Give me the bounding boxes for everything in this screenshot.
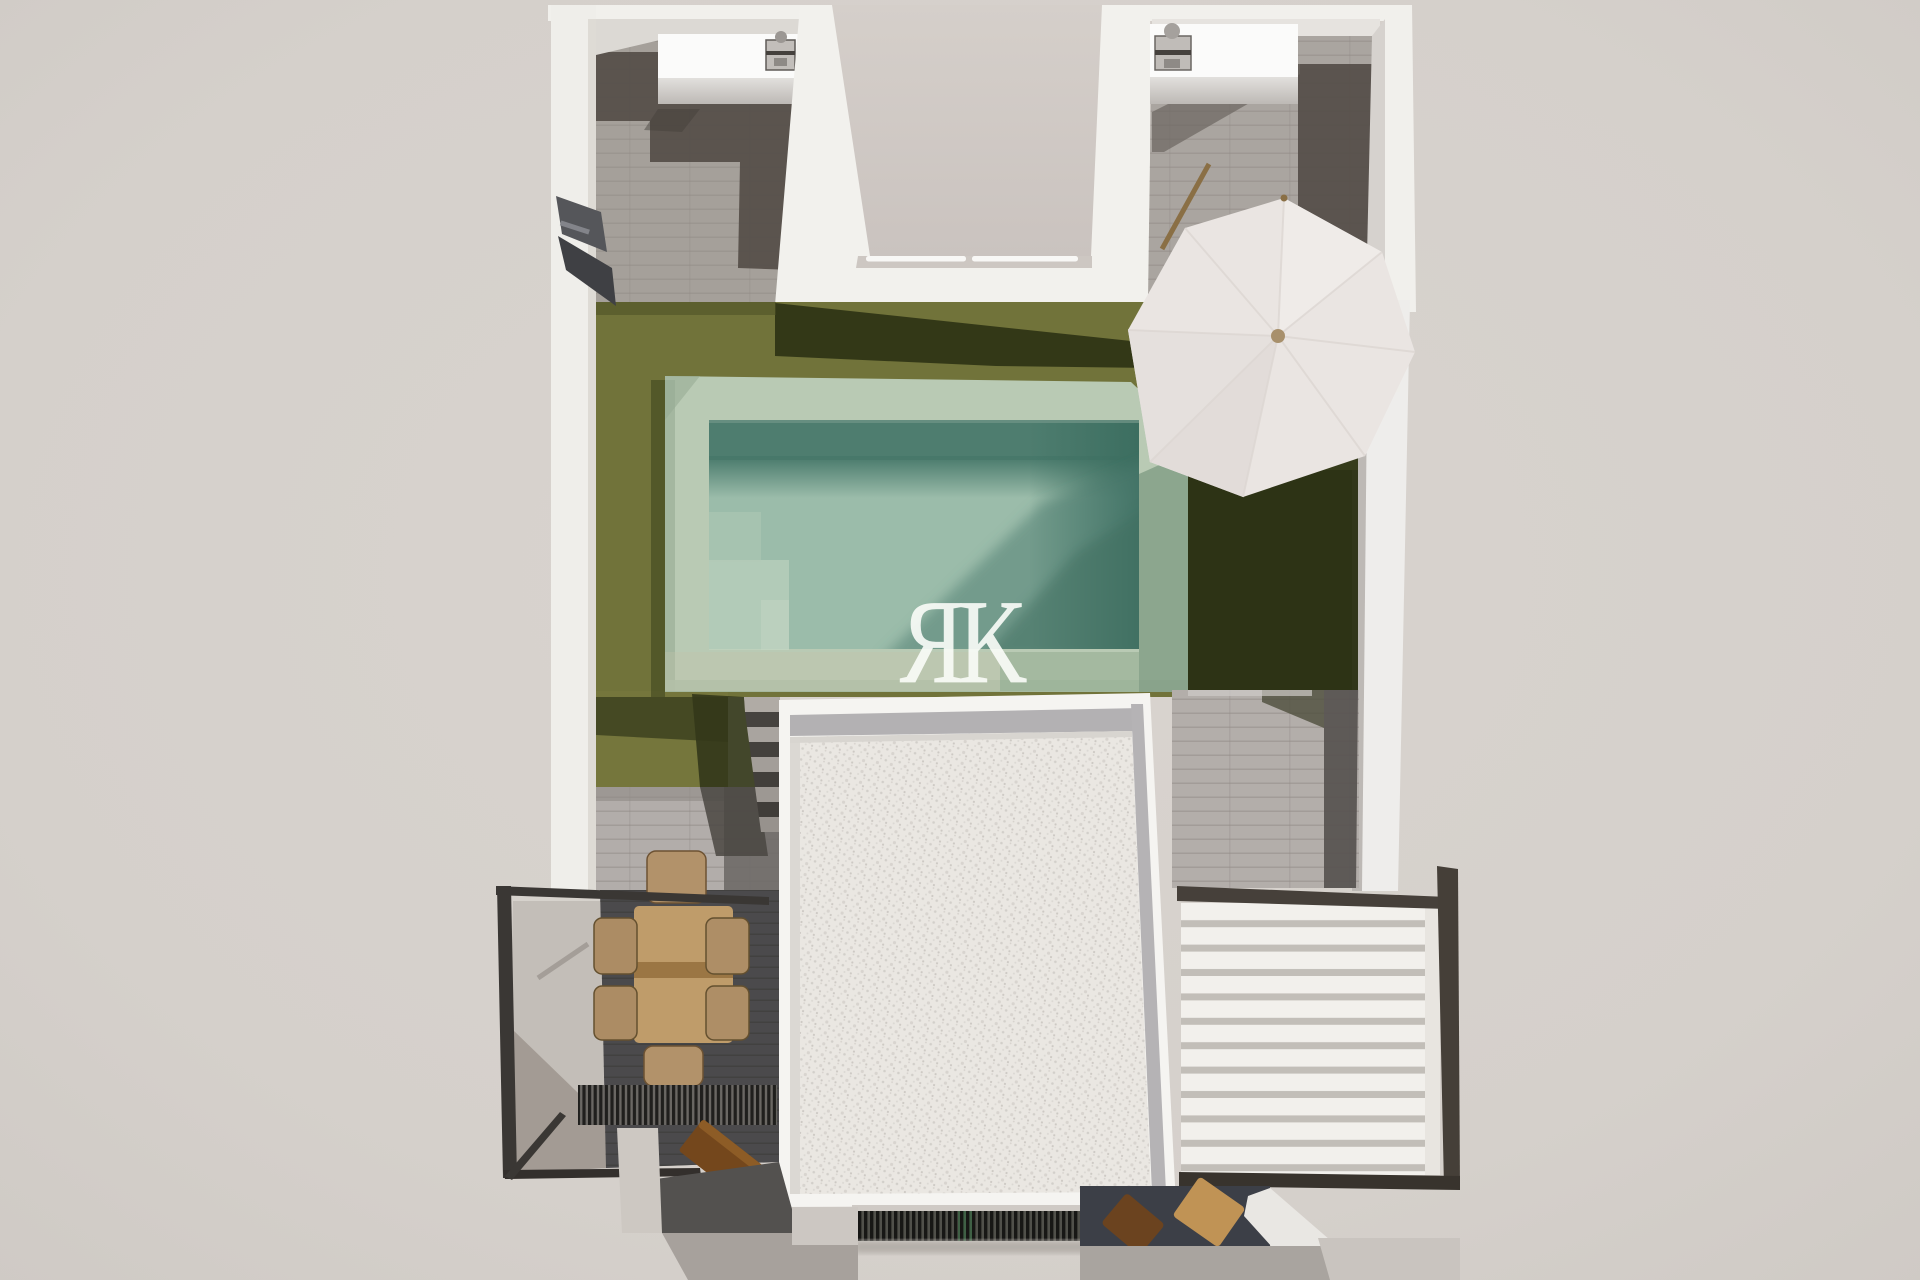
svg-text:K: K xyxy=(958,575,1027,709)
svg-text:R: R xyxy=(900,575,964,709)
